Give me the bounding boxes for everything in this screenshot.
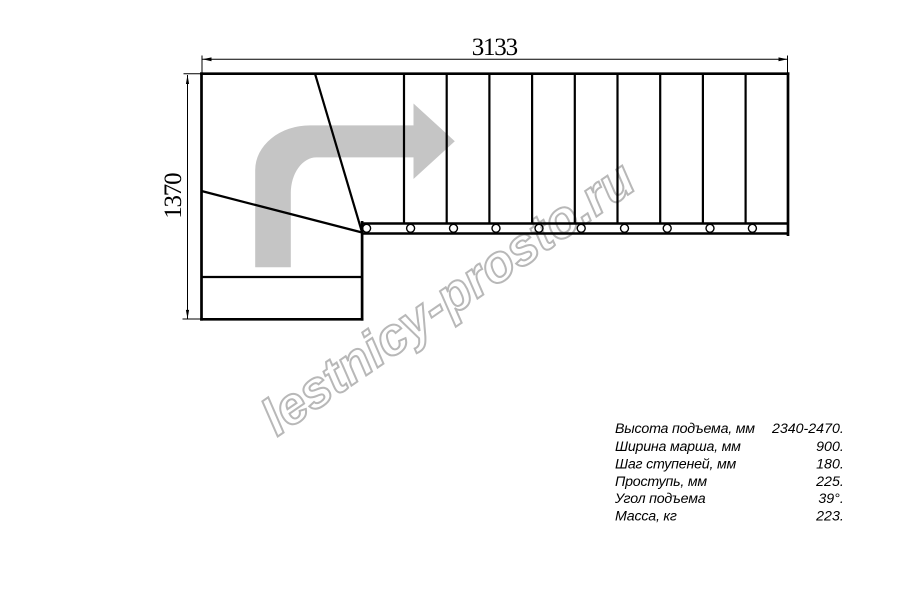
svg-text:2340-2470.: 2340-2470.	[771, 421, 844, 437]
svg-text:Высота подъема, мм: Высота подъема, мм	[615, 421, 755, 437]
svg-text:Угол подъема: Угол подъема	[614, 491, 706, 507]
svg-text:Проступь, мм: Проступь, мм	[615, 474, 707, 490]
svg-text:1370: 1370	[160, 173, 187, 219]
svg-text:180.: 180.	[816, 457, 844, 473]
svg-text:225.: 225.	[815, 474, 844, 490]
svg-text:Ширина марша, мм: Ширина марша, мм	[615, 439, 741, 455]
svg-text:3133: 3133	[472, 34, 518, 61]
svg-text:39°.: 39°.	[818, 491, 843, 507]
svg-text:Масса, кг: Масса, кг	[615, 509, 677, 525]
svg-text:Шаг ступеней, мм: Шаг ступеней, мм	[615, 457, 736, 473]
svg-text:223.: 223.	[815, 509, 844, 525]
svg-text:900.: 900.	[816, 439, 844, 455]
